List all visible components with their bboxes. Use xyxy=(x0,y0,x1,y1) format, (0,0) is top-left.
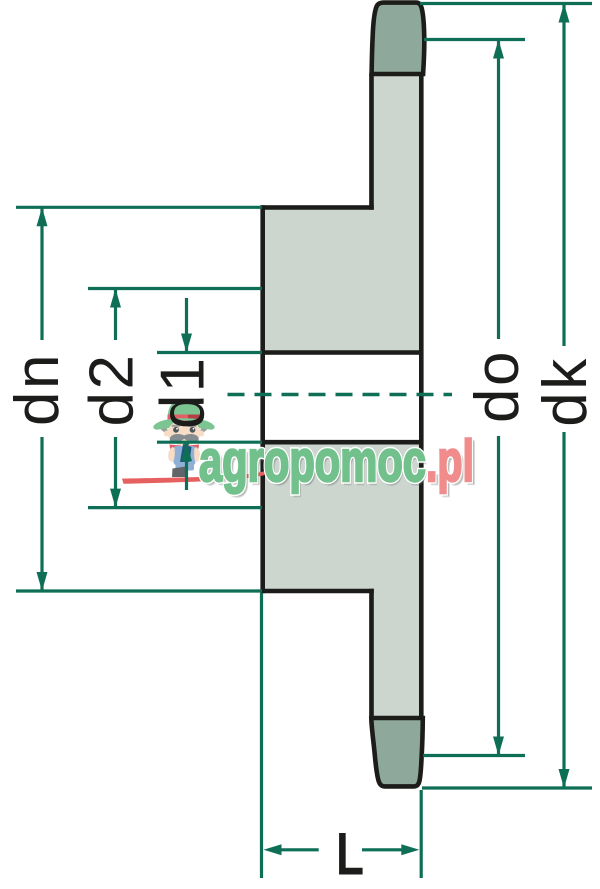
svg-text:L: L xyxy=(336,821,364,888)
svg-text:dn: dn xyxy=(3,352,72,426)
svg-text:agropomoc: agropomoc xyxy=(199,429,426,494)
svg-text:d1: d1 xyxy=(149,356,218,429)
svg-text:dk: dk xyxy=(531,356,600,426)
svg-text:.pl: .pl xyxy=(426,429,474,494)
svg-text:do: do xyxy=(463,349,532,423)
svg-text:d2: d2 xyxy=(78,353,147,427)
